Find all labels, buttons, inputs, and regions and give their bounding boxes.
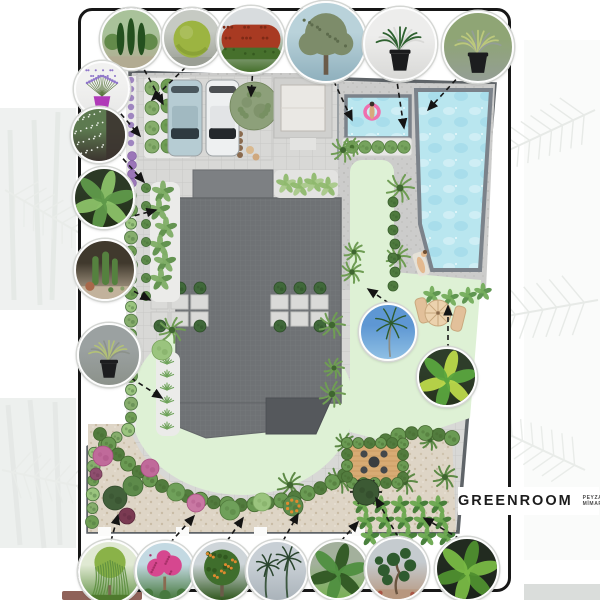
weeping-willow-photo bbox=[78, 540, 142, 600]
banana-dark-photo bbox=[435, 537, 499, 600]
logo-tagline-line2: MİMARLIK bbox=[583, 501, 600, 507]
niwaki-pine-photo-glyph bbox=[367, 539, 427, 599]
boxwood-ball-photo-glyph bbox=[164, 10, 220, 66]
banana-plant-photo bbox=[417, 347, 477, 407]
poster-frame bbox=[78, 8, 511, 592]
weeping-willow-photo-glyph bbox=[80, 542, 140, 600]
cypress-garden-photo bbox=[100, 8, 162, 70]
brand-name: GREENROOM bbox=[458, 493, 573, 509]
tropical-banana-photo bbox=[73, 167, 135, 229]
niwaki-pine-photo bbox=[365, 537, 429, 600]
banana-plant-photo-glyph bbox=[419, 349, 475, 405]
photinia-hedge-photo-glyph bbox=[219, 8, 283, 72]
tropical-banana-photo-glyph bbox=[75, 169, 133, 227]
jasmine-wall-photo-glyph bbox=[73, 109, 125, 161]
yucca-pot-photo bbox=[442, 11, 514, 83]
olive-tree-photo-glyph bbox=[287, 3, 365, 81]
cypress-garden-photo-glyph bbox=[102, 10, 160, 68]
sago-palm-pot-photo bbox=[363, 7, 437, 81]
sago-palm-pot-photo-glyph bbox=[365, 9, 435, 79]
boxwood-ball-photo bbox=[162, 8, 222, 68]
coconut-palm-photo bbox=[359, 303, 417, 361]
orange-tree-photo bbox=[191, 540, 253, 600]
yucca-pot-photo-glyph bbox=[444, 13, 512, 81]
brand-logo: GREENROOM PEYZAJ MİMARLIK bbox=[458, 487, 599, 515]
banana-grove-photo bbox=[308, 540, 368, 600]
cactus-garden-photo-glyph bbox=[76, 241, 134, 299]
olive-tree-photo bbox=[285, 1, 367, 83]
screenshot-root: GREENROOM PEYZAJ MİMARLIK bbox=[0, 0, 600, 600]
photinia-hedge-photo bbox=[217, 6, 285, 74]
orange-tree-photo-glyph bbox=[193, 542, 251, 600]
logo-tagline: PEYZAJ MİMARLIK bbox=[583, 495, 600, 508]
crape-myrtle-photo-glyph bbox=[137, 543, 193, 599]
palms-sky-photo bbox=[246, 540, 308, 600]
banana-dark-photo-glyph bbox=[437, 539, 497, 599]
yucca-pot-2-photo bbox=[77, 323, 141, 387]
jasmine-wall-photo bbox=[71, 107, 127, 163]
coconut-palm-photo-glyph bbox=[361, 305, 415, 359]
yucca-pot-2-photo-glyph bbox=[79, 325, 139, 385]
palms-sky-photo-glyph bbox=[248, 542, 306, 600]
cactus-garden-photo bbox=[74, 239, 136, 301]
banana-grove-photo-glyph bbox=[310, 542, 366, 598]
crape-myrtle-photo bbox=[135, 541, 195, 600]
